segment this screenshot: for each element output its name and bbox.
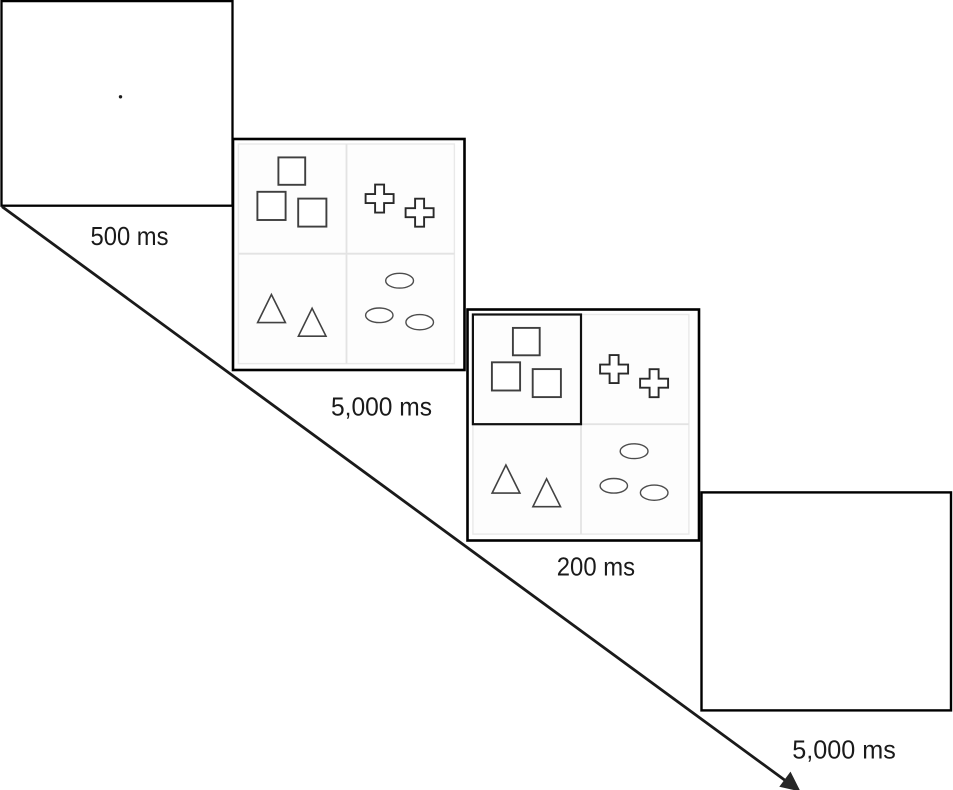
svg-text:200 ms: 200 ms <box>557 552 635 582</box>
svg-text:5,000 ms: 5,000 ms <box>331 392 432 422</box>
svg-text:5,000 ms: 5,000 ms <box>792 735 896 765</box>
svg-text:500 ms: 500 ms <box>91 221 169 251</box>
